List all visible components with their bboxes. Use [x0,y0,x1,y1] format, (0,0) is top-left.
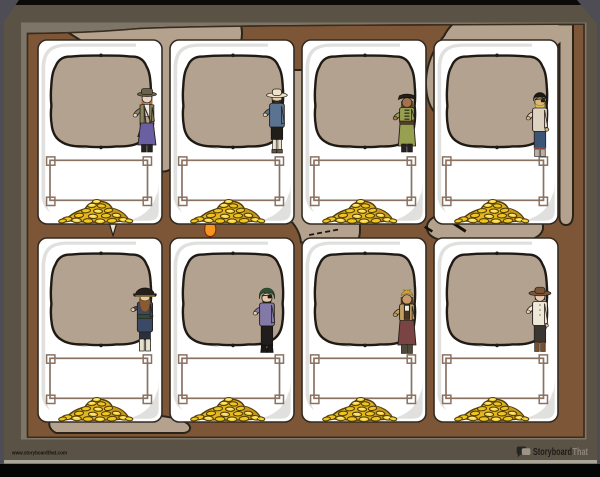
svg-text:Storyboard: Storyboard [533,447,572,458]
svg-text:www.storyboardthat.com: www.storyboardthat.com [11,451,67,457]
svg-text:That: That [573,447,589,458]
